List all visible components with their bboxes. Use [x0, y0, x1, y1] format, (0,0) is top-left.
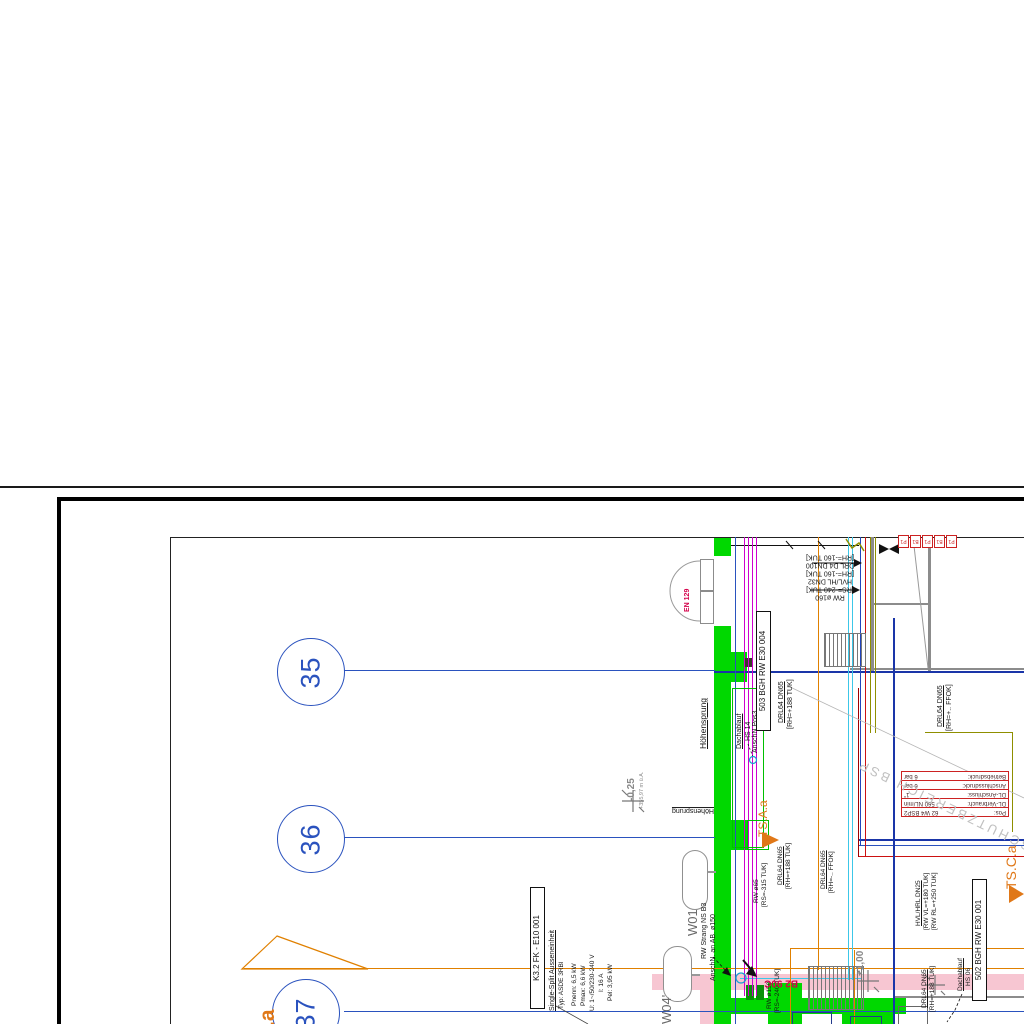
cad-outline-rect [792, 1012, 832, 1024]
drawing-frame-left [170, 537, 171, 1024]
cad-line [858, 845, 1024, 846]
label-502-box: 502 BGH RW E30 001 [972, 879, 987, 1001]
cad-line [731, 545, 859, 546]
cad-line [344, 670, 715, 671]
cad-line [875, 537, 876, 733]
louvre-grille-block [824, 633, 866, 667]
cad-line [1012, 732, 1013, 832]
table-cell-key: Pos: [994, 809, 1006, 815]
label-w01: W01 [686, 909, 701, 936]
cad-line [893, 618, 895, 1024]
label-elev-plus100: +1,00 [855, 951, 867, 976]
label-drl-1a: DRL64 DN65 [778, 681, 786, 723]
label-door-en129: EN 129 [684, 589, 692, 612]
label-drl-5a: DRL64 DN65 [921, 969, 928, 1008]
label-elev-minus025: -0,25 [626, 778, 638, 801]
drawing-frame-top [170, 537, 1024, 538]
cad-line [244, 968, 1024, 969]
cad-line [928, 537, 931, 671]
label-rs240: [RS=-240 TUK] [774, 969, 781, 1013]
label-drl-3a: DRL64 DN65 [777, 846, 784, 885]
label-anschn-ab150: AnschN. an AB. ø150 [710, 914, 718, 981]
door-leaf-top [700, 559, 714, 591]
label-k32-pnenn: Pnenn: 6,5 kW [571, 963, 578, 1006]
label-drl-1b: [RH=+188 TUK] [787, 679, 795, 729]
label-drl-5b: [RH=+188 TUK] [929, 966, 936, 1012]
cad-line [818, 537, 819, 970]
riser-symbol-w01 [682, 850, 708, 910]
cad-line [850, 668, 1024, 670]
sheet-border-top [57, 497, 1024, 501]
grid-bubble-37-label: 37 [290, 997, 321, 1024]
label-drl-4a: DRL64 DN65 [820, 850, 827, 889]
cad-line [344, 837, 715, 838]
page-top-rule [0, 486, 1024, 488]
cad-sheet-viewport: 35 36 37 Pos:62 W4 BSP2DL-Verbrauch:560 … [0, 0, 1024, 1024]
cad-fill [713, 556, 732, 626]
label-ts-partial: f.a [256, 1009, 280, 1024]
cad-line [790, 948, 1024, 949]
marker-box: B1 [934, 535, 945, 548]
table-cell-key: Anschlussdruck: [962, 782, 1006, 788]
door-leaf-bottom [700, 591, 714, 624]
label-elev-355: +355,97 m ü.A. [639, 772, 645, 809]
label-rw-strang: RW Strang NS B3 [701, 903, 709, 959]
grid-bubble-36: 36 [277, 805, 345, 873]
label-hvl: HVL/HRL DN25 [915, 880, 922, 926]
annotation-layer: HöhensprungHöhensprungDachablaufHS 14Ans… [0, 0, 1024, 1024]
label-ts-c-a: TS.C.a [1003, 845, 1019, 889]
label-w04: W04' [660, 995, 675, 1024]
label-k32-pel: Pel: 3,95 kW [607, 964, 614, 1001]
label-k32-typ: Typ: ASDE 3RBl [558, 962, 565, 1009]
label-k32-i: I: 16 A [598, 974, 605, 992]
label-ts-a-a: TS.A.a [757, 800, 771, 837]
label-k32-box: K3.2 FK - E10 001 [530, 887, 545, 1009]
label-hvl-vl: [RW VL=+180 TUK] [923, 873, 930, 930]
label-k32-title: Single-Split Ausseneinheit [549, 930, 557, 1011]
cad-line [858, 856, 1024, 857]
cad-line [871, 603, 931, 605]
cad-outline-rect [850, 1016, 882, 1024]
marker-box: P1 [922, 535, 933, 548]
sheet-border-left [57, 497, 61, 1024]
label-rw65: RW ø65 [753, 879, 760, 903]
table-cell-value: 62 W4 BSP2 [904, 809, 938, 815]
label-hoehensprung: Höhensprung [699, 698, 709, 749]
grid-bubble-36-label: 36 [295, 823, 326, 855]
riser-symbol-w04 [663, 946, 692, 1002]
label-drl-2a: DRL64 DN65 [937, 685, 945, 727]
label-k32-u: U: 1~/50/230-240 V [589, 954, 596, 1011]
marker-box-row: P1B1P1B1P1 [898, 535, 957, 548]
label-b2-90c: B2 90C [756, 977, 798, 989]
cad-line [893, 996, 1024, 998]
label-hvl-rl: [RW RL=+250 TUK] [931, 872, 938, 930]
cad-outline-rect [898, 1006, 928, 1024]
table-cell-key: DL-Anschluss: [967, 791, 1006, 797]
grid-bubble-35: 35 [277, 638, 345, 706]
label-drl-4b: [RH=-.. FFOK] [828, 851, 835, 893]
label-pipe-stack: RW ø160 [RS=-240 TUK] HVL/HL DN32 [RH=-1… [787, 552, 873, 600]
marker-box: P1 [946, 535, 957, 548]
table-row: Betriebsdruck:6 bar [902, 772, 1008, 781]
label-hoehensprung-2: Höhensprung [664, 806, 714, 814]
label-k32-pmax: Pmax: 6,6 kW [580, 966, 587, 1006]
grid-bubble-35-label: 35 [295, 656, 326, 688]
marker-box: B1 [910, 535, 921, 548]
label-drl-2b: [RH=+.. FFOK] [946, 684, 954, 731]
label-dachablauf-2: Dachablauf [957, 958, 964, 991]
cad-line [925, 732, 1013, 733]
label-drl-3b: [RH=+188 TUK] [785, 843, 792, 889]
label-503-box: 503 BGH RW E30 004 [756, 611, 771, 731]
marker-box: P1 [898, 535, 909, 548]
table-cell-key: DL-Verbrauch: [967, 800, 1006, 806]
label-rs315: [RS=-315 TUK] [761, 863, 768, 907]
table-cell-key: Betriebsdruck: [968, 773, 1006, 779]
label-dachablauf-1: Dachablauf [736, 714, 744, 749]
